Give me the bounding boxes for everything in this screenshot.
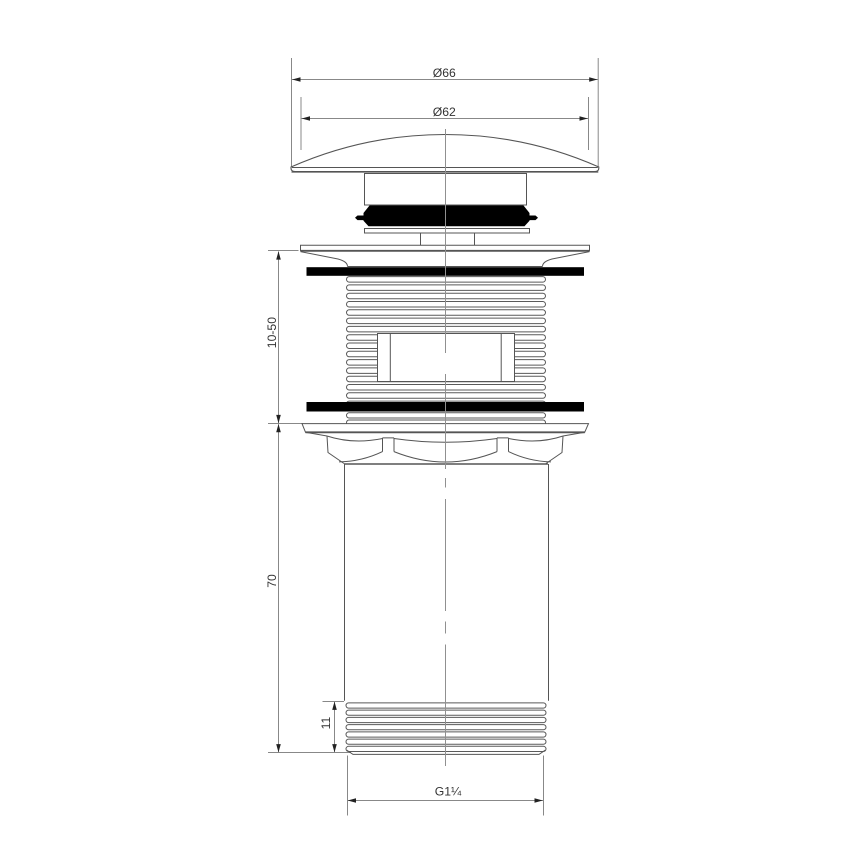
svg-text:10-50: 10-50	[265, 317, 279, 348]
svg-text:G1¼: G1¼	[435, 785, 462, 799]
svg-text:70: 70	[265, 574, 279, 588]
svg-text:Ø62: Ø62	[433, 105, 456, 119]
svg-text:11: 11	[319, 716, 333, 729]
svg-text:Ø66: Ø66	[433, 66, 456, 80]
